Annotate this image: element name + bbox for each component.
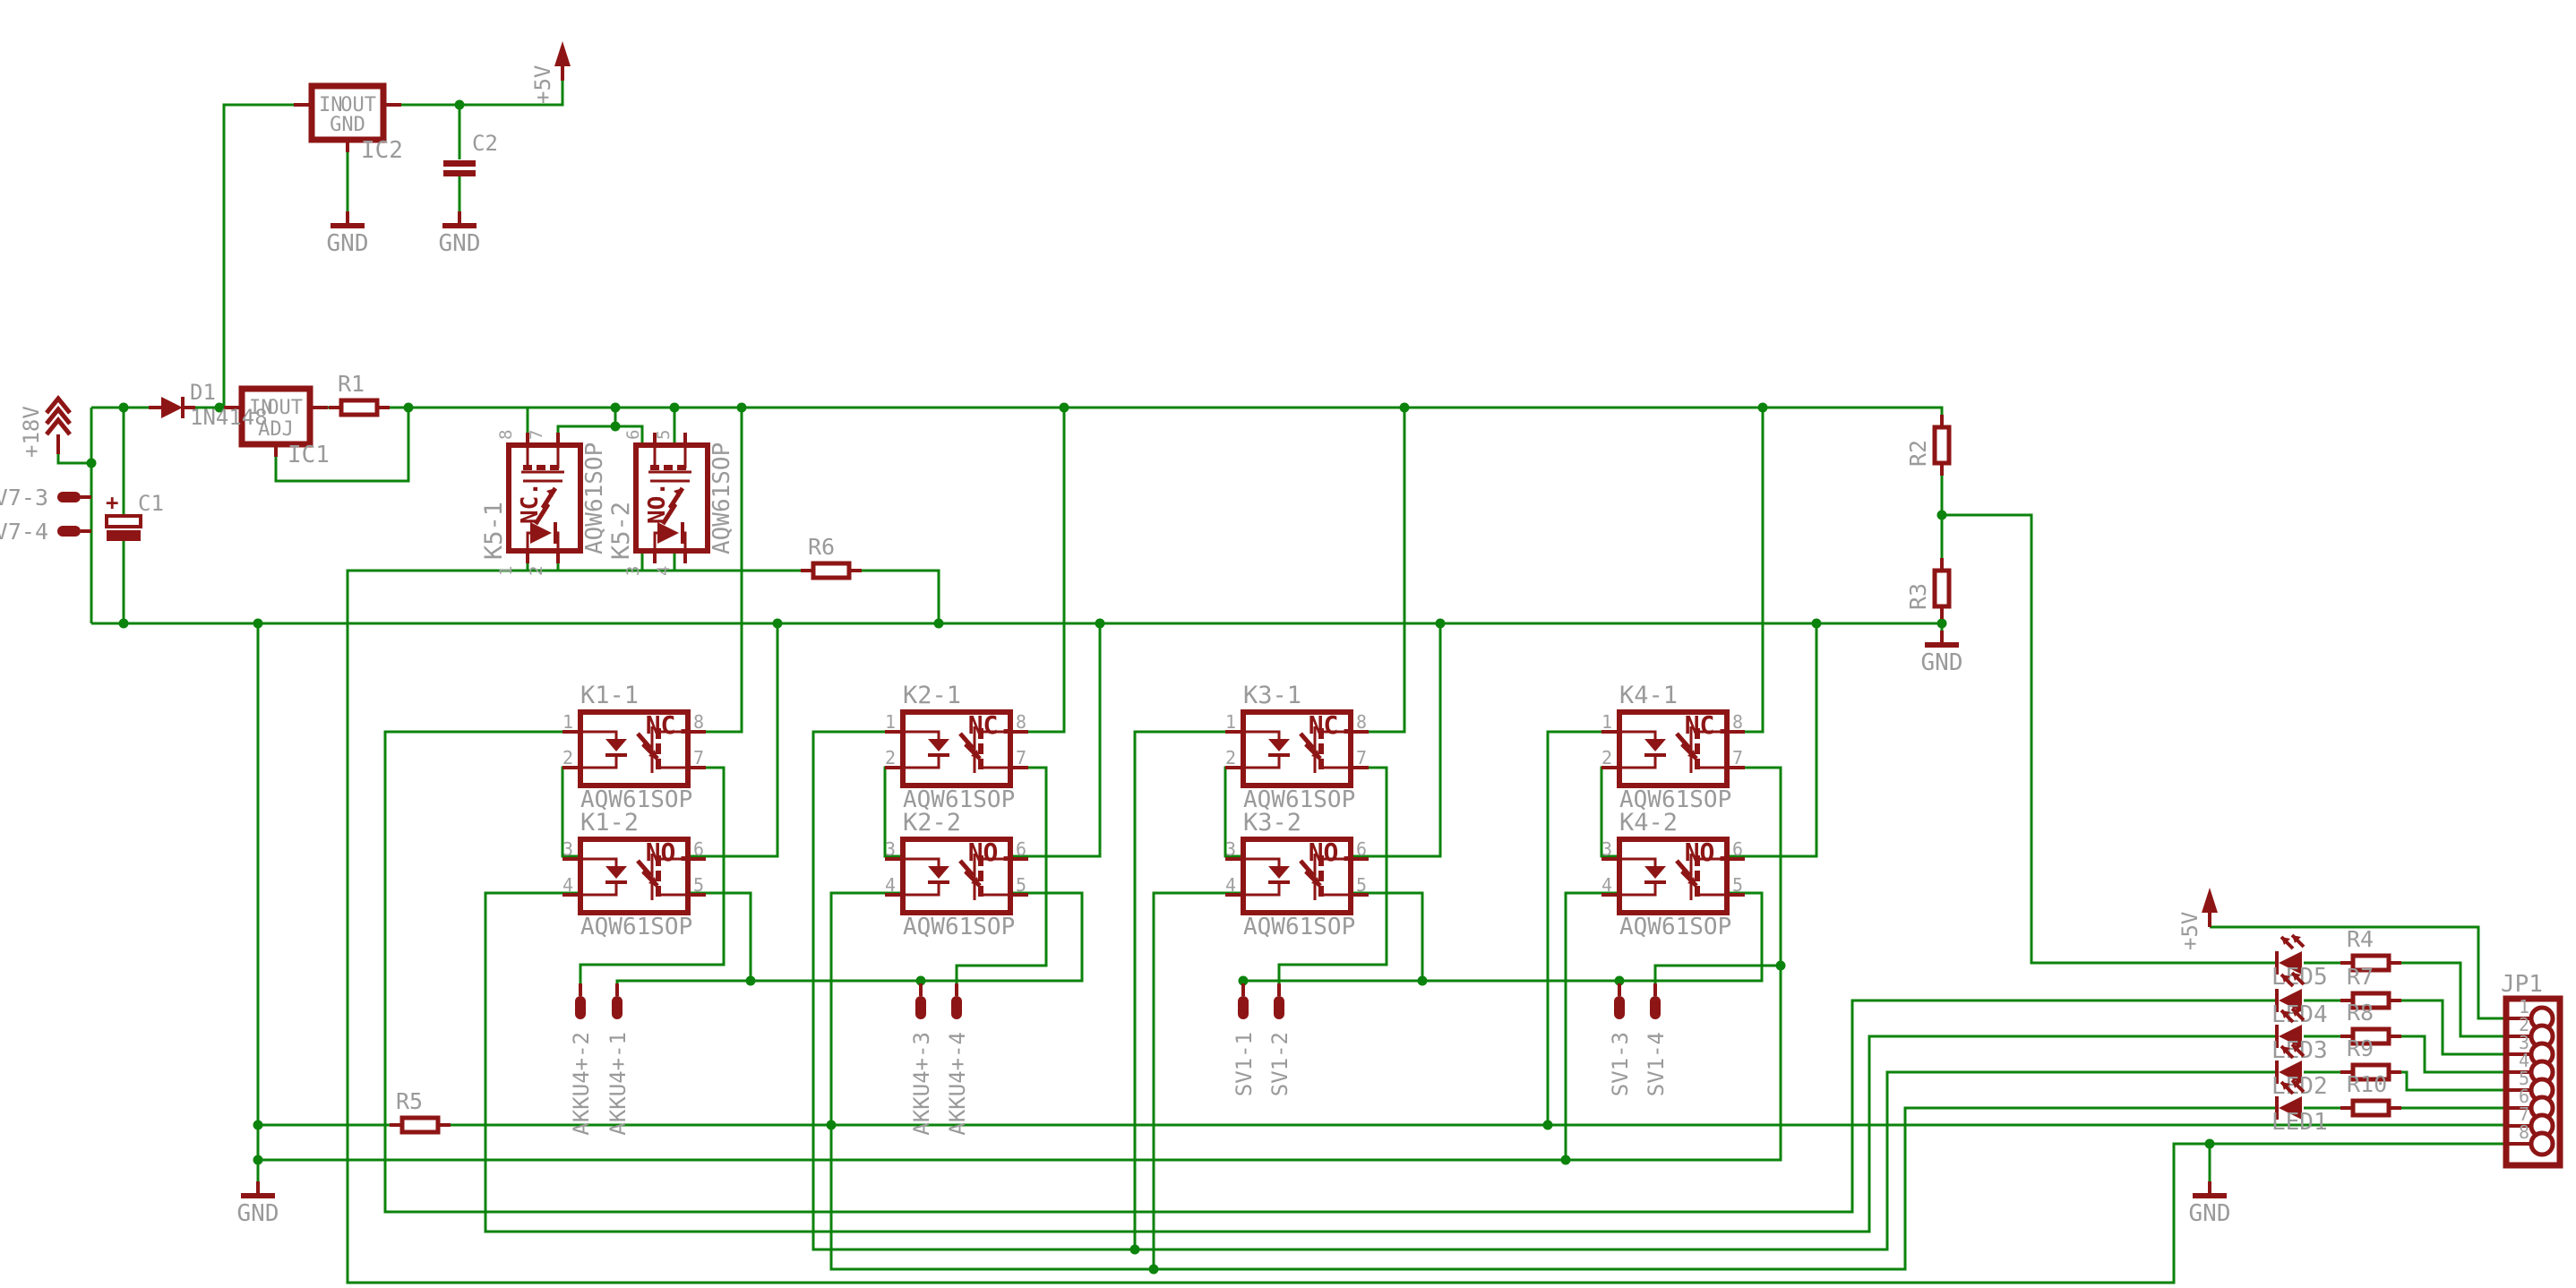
K4-1-label: K4-1 <box>1619 682 1678 709</box>
R3-body[interactable] <box>1935 571 1949 606</box>
junction-dot <box>1937 619 1947 629</box>
K3-1-pin-number: 8 <box>1356 711 1367 733</box>
K1-1-fet-bar <box>656 743 661 754</box>
+5V-arrow <box>2202 888 2218 913</box>
K2-1-pin-number: 7 <box>1016 747 1026 769</box>
K3-1-pin-number: 1 <box>1225 711 1236 733</box>
label-C2: C2 <box>472 131 498 156</box>
junction-dot <box>119 619 129 629</box>
K4-2-part-label: AQW61SOP <box>1619 914 1731 940</box>
junction-dot <box>1543 1121 1553 1130</box>
K5-1-pin-number: 2 <box>527 566 546 576</box>
K5-1-label: K5-1 <box>480 502 508 560</box>
AKKU4+-3-pad[interactable] <box>915 996 926 1019</box>
SV1-4-pad[interactable] <box>1650 996 1661 1019</box>
K5-2-pin-number: 3 <box>623 566 643 576</box>
junction-dot <box>1561 1155 1571 1165</box>
junction-dot <box>253 1121 263 1130</box>
D1-triangle <box>161 397 183 418</box>
K1-2-led-lead <box>580 859 616 866</box>
AKKU4+-4-label: AKKU4+-4 <box>945 1032 970 1136</box>
wire-26 <box>849 571 939 623</box>
C1-plate-top[interactable] <box>107 516 141 527</box>
junction-dot <box>827 1121 837 1130</box>
wire-5 <box>58 454 91 463</box>
K4-2-pin-number: 5 <box>1732 874 1743 896</box>
wire-55 <box>1135 732 1243 1249</box>
K3-2-part-label: AQW61SOP <box>1243 914 1355 940</box>
K1-2-pin-number: 5 <box>693 874 704 896</box>
K5-2-pin-number: 6 <box>623 430 643 440</box>
K1-1-led-lead <box>580 755 616 768</box>
K3-2-label: K3-2 <box>1243 809 1301 837</box>
AKKU4+-2-pad[interactable] <box>575 996 586 1019</box>
SV1-2-pad[interactable] <box>1274 996 1284 1019</box>
R8-label: R8 <box>2347 1000 2374 1026</box>
gnd-label: GND <box>2189 1200 2231 1227</box>
SV7-4-label: SV7-4 <box>0 519 48 545</box>
K4-2-fet-bar <box>1695 871 1700 881</box>
K2-1-pin-number: 8 <box>1016 711 1026 733</box>
K1-1-led-lead <box>580 732 616 739</box>
K2-2-fet-bar <box>978 871 983 881</box>
K2-2-pin-number: 4 <box>885 874 896 896</box>
schematic-page: INOUTGNDIC2INOUTADJIC11827NC.K1-1AQW61SO… <box>0 0 2576 1288</box>
K3-2-led-lead <box>1243 859 1279 866</box>
K5-1-pin-number: 7 <box>527 430 546 440</box>
gnd-label: GND <box>327 230 369 257</box>
junction-dot <box>253 1155 263 1165</box>
junction-dot <box>934 619 944 629</box>
K1-1-pin-number: 1 <box>562 711 573 733</box>
K4-2-led-triangle <box>1644 866 1666 879</box>
R2-body[interactable] <box>1935 427 1949 463</box>
JP1-pin-8[interactable] <box>2531 1133 2553 1155</box>
K4-1-pin-number: 1 <box>1601 711 1612 733</box>
gnd-label: GND <box>439 230 481 257</box>
K2-2-label: K2-2 <box>903 809 961 837</box>
R1-label: R1 <box>338 371 365 397</box>
wire-39 <box>813 732 2277 1249</box>
K4-1-mode-label: NC. <box>1685 710 1730 740</box>
K5-1-mode-label: NC. <box>517 482 544 524</box>
junction-dot <box>1149 1265 1159 1275</box>
K3-2-led-lead <box>1243 882 1279 895</box>
junction-dot <box>1776 961 1786 971</box>
wire-0 <box>224 105 312 408</box>
K1-2-fet-bar <box>656 871 661 881</box>
junction-dot <box>737 403 747 413</box>
label-D1: D1 <box>190 380 216 405</box>
IC2-label: IC2 <box>361 137 403 164</box>
AKKU4+-3-label: AKKU4+-3 <box>909 1032 934 1136</box>
K3-2-pin-number: 6 <box>1356 838 1367 860</box>
K2-2-led-lead <box>903 882 939 895</box>
K3-1-pin-number: 7 <box>1356 747 1367 769</box>
K1-2-fet-bar <box>656 886 661 897</box>
IC2-pin-label-bottom: GND <box>330 114 365 136</box>
SV1-1-label: SV1-1 <box>1232 1032 1257 1096</box>
K2-1-pin-number: 2 <box>885 747 896 769</box>
K2-2-pin-number: 6 <box>1016 838 1026 860</box>
wire-30 <box>688 893 751 981</box>
K5-1-led-triangle <box>530 522 552 544</box>
K2-1-pin-number: 1 <box>885 711 896 733</box>
K5-2-led-triangle <box>657 522 679 544</box>
+5V-label: +5V <box>530 65 555 104</box>
junction-dot <box>404 403 414 413</box>
K1-1-label: K1-1 <box>580 682 639 709</box>
wire-38 <box>1010 623 1100 856</box>
junction-dot <box>253 619 263 629</box>
K2-2-pin-number: 3 <box>885 838 896 860</box>
R9-label: R9 <box>2347 1035 2374 1061</box>
JP1-pin-number: 8 <box>2519 1121 2529 1143</box>
K5-2-fet-bar <box>650 465 659 470</box>
LED5-label: LED5 <box>2271 964 2328 991</box>
K3-1-pin-number: 2 <box>1225 747 1236 769</box>
gnd-label: GND <box>237 1200 279 1227</box>
wire-42 <box>1351 408 1404 732</box>
K1-1-fet-bar <box>656 759 661 769</box>
schematic-canvas: INOUTGNDIC2INOUTADJIC11827NC.K1-1AQW61SO… <box>0 0 2576 1288</box>
label-C1: C1 <box>138 491 164 516</box>
K5-1-fet-bar <box>523 465 532 470</box>
K3-2-led-triangle <box>1268 866 1290 879</box>
K4-1-fet-bar <box>1695 743 1700 754</box>
R4-label: R4 <box>2347 926 2374 952</box>
junction-dot <box>1758 403 1768 413</box>
wire-36 <box>485 893 2277 1232</box>
K3-1-led-lead <box>1243 755 1279 768</box>
R10-body[interactable] <box>2353 1101 2389 1115</box>
junction-dot <box>2205 1139 2215 1149</box>
junction-dot <box>1937 511 1947 520</box>
AKKU4+-4-pad[interactable] <box>951 996 962 1019</box>
K4-1-led-triangle <box>1644 739 1666 751</box>
K4-1-pin-number: 8 <box>1732 711 1743 733</box>
+5V-label: +5V <box>2177 912 2202 950</box>
K1-1-pin-number: 8 <box>693 711 704 733</box>
junction-dot <box>1812 619 1822 629</box>
wire-72 <box>2389 1072 2508 1090</box>
K1-1-pin-number: 7 <box>693 747 704 769</box>
wire-54 <box>1566 893 1619 1160</box>
SV1-2-label: SV1-2 <box>1267 1032 1292 1096</box>
K4-2-pin-number: 4 <box>1601 874 1612 896</box>
K3-1-led-lead <box>1243 732 1279 739</box>
K1-2-led-triangle <box>605 866 627 879</box>
wire-51 <box>1727 623 1816 856</box>
+5V-arrow <box>554 41 571 66</box>
junction-dot <box>670 403 680 413</box>
junction-dot <box>746 976 756 986</box>
SV7-4-pad[interactable] <box>57 526 81 537</box>
wire-46 <box>1243 893 1762 996</box>
wire-68 <box>2389 1000 2508 1054</box>
SV1-1-pad[interactable] <box>1238 996 1249 1019</box>
junction-dot <box>1130 1245 1140 1255</box>
R6-body[interactable] <box>813 563 849 578</box>
SV1-3-pad[interactable] <box>1614 996 1625 1019</box>
AKKU4+-1-pad[interactable] <box>612 996 623 1019</box>
R5-body[interactable] <box>402 1118 438 1132</box>
K4-1-led-lead <box>1619 755 1655 768</box>
K5-1-pin-number: 1 <box>496 566 516 576</box>
JP1-label: JP1 <box>2501 971 2543 998</box>
K2-2-led-triangle <box>928 866 949 879</box>
K4-2-fet-bar <box>1695 886 1700 897</box>
K5-1-part-label: AQW61SOP <box>581 442 608 554</box>
R7-label: R7 <box>2347 964 2374 990</box>
C1-polarity: + <box>106 490 118 515</box>
K2-1-led-lead <box>903 732 939 739</box>
K4-2-led-lead <box>1619 882 1655 895</box>
IC1-pin-label-right: OUT <box>267 397 303 419</box>
wire-29 <box>688 623 777 856</box>
K1-2-mode-label: NO. <box>646 837 691 867</box>
K5-2-fet-bar <box>677 465 686 470</box>
K2-2-mode-label: NO. <box>968 837 1014 867</box>
label-1N4148: 1N4148 <box>190 405 268 430</box>
SV7-3-label: SV7-3 <box>0 485 48 511</box>
K1-1-mode-label: NC. <box>646 710 691 740</box>
R3-label: R3 <box>1905 583 1931 610</box>
AKKU4+-1-label: AKKU4+-1 <box>605 1032 631 1136</box>
junction-dot <box>611 403 621 413</box>
K3-2-mode-label: NO. <box>1309 837 1354 867</box>
K1-2-pin-number: 4 <box>562 874 573 896</box>
SV1-4-label: SV1-4 <box>1644 1032 1669 1096</box>
K1-2-label: K1-2 <box>580 809 639 837</box>
SV1-3-label: SV1-3 <box>1608 1032 1633 1096</box>
K5-2-label: K5-2 <box>607 502 635 560</box>
K3-2-pin-number: 4 <box>1225 874 1236 896</box>
K2-2-part-label: AQW61SOP <box>903 914 1015 940</box>
K1-1-led-triangle <box>605 739 627 751</box>
K4-2-label: K4-2 <box>1619 809 1678 837</box>
IC1-label: IC1 <box>288 442 330 468</box>
K4-1-led-lead <box>1619 732 1655 739</box>
R2-label: R2 <box>1905 440 1931 467</box>
K2-2-fet-bar <box>978 886 983 897</box>
junction-dot <box>1060 403 1069 413</box>
K5-2-part-label: AQW61SOP <box>708 442 735 554</box>
K2-1-fet-bar <box>978 759 983 769</box>
K4-1-pin-number: 2 <box>1601 747 1612 769</box>
K5-2-fet-bar <box>664 465 673 470</box>
K1-2-pin-number: 6 <box>693 838 704 860</box>
K5-2-pin-number: 5 <box>654 430 674 440</box>
R1-body[interactable] <box>341 400 377 415</box>
K1-2-led-lead <box>580 882 616 895</box>
wire-50 <box>1727 408 1763 732</box>
K5-2-mode-label: NO. <box>644 482 671 524</box>
K3-2-pin-number: 3 <box>1225 838 1236 860</box>
K4-1-pin-number: 7 <box>1732 747 1743 769</box>
junction-dot <box>611 422 621 432</box>
SV7-3-pad[interactable] <box>57 492 81 502</box>
K2-1-mode-label: NC. <box>968 710 1014 740</box>
wire-62 <box>1942 515 2277 963</box>
junction-dot <box>455 100 465 110</box>
wire-37 <box>1010 408 1064 732</box>
K3-2-fet-bar <box>1318 886 1324 897</box>
K3-1-fet-bar <box>1318 743 1324 754</box>
K5-1-fet-bar <box>537 465 545 470</box>
junction-dot <box>1418 976 1428 986</box>
junction-dot <box>87 459 97 468</box>
K2-1-label: K2-1 <box>903 682 961 709</box>
K3-1-mode-label: NC. <box>1309 710 1354 740</box>
K4-2-mode-label: NO. <box>1685 837 1730 867</box>
junction-dot <box>119 403 129 413</box>
LED1-label: LED1 <box>2271 1109 2328 1136</box>
K4-1-fet-bar <box>1695 759 1700 769</box>
junction-dot <box>773 619 783 629</box>
K4-2-pin-number: 3 <box>1601 838 1612 860</box>
+18V-label: +18V <box>19 406 44 458</box>
junction-dot <box>1436 619 1446 629</box>
K1-2-part-label: AQW61SOP <box>580 914 692 940</box>
K2-1-led-triangle <box>928 739 949 751</box>
K3-1-led-triangle <box>1268 739 1290 751</box>
wire-44 <box>1351 623 1440 856</box>
K1-2-pin-number: 3 <box>562 838 573 860</box>
C2-plate-top[interactable] <box>443 160 476 167</box>
K3-2-fet-bar <box>1318 871 1324 881</box>
gnd-label: GND <box>1921 649 1963 676</box>
K1-1-pin-number: 2 <box>562 747 573 769</box>
K3-1-fet-bar <box>1318 759 1324 769</box>
junction-dot <box>1095 619 1105 629</box>
K4-2-pin-number: 6 <box>1732 838 1743 860</box>
AKKU4+-2-label: AKKU4+-2 <box>569 1032 594 1136</box>
K2-2-pin-number: 5 <box>1016 874 1026 896</box>
R10-label: R10 <box>2347 1071 2387 1097</box>
K5-2-pin-number: 4 <box>654 566 674 576</box>
K3-2-pin-number: 5 <box>1356 874 1367 896</box>
K3-1-label: K3-1 <box>1243 682 1301 709</box>
K2-1-fet-bar <box>978 743 983 754</box>
C1-plate-bottom <box>107 530 141 541</box>
R5-label: R5 <box>396 1088 423 1114</box>
R6-label: R6 <box>808 534 835 560</box>
K4-2-led-lead <box>1619 859 1655 866</box>
K2-1-led-lead <box>903 755 939 768</box>
K5-1-pin-number: 8 <box>496 430 516 440</box>
K2-2-led-lead <box>903 859 939 866</box>
K5-1-fet-bar <box>550 465 559 470</box>
C2-plate-bottom <box>443 170 476 176</box>
junction-dot <box>1400 403 1410 413</box>
